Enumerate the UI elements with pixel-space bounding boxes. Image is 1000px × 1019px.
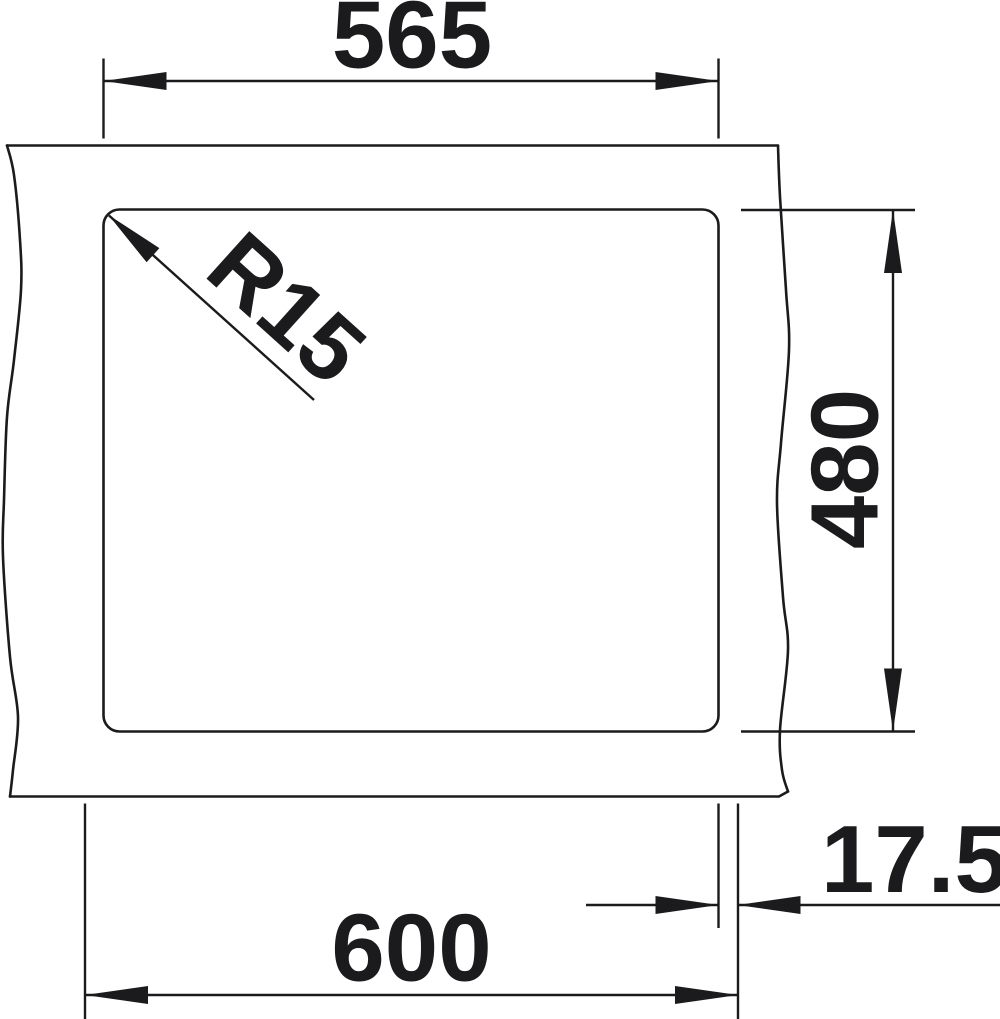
svg-text:17.5: 17.5 [821,806,1000,913]
svg-text:565: 565 [332,0,492,89]
svg-text:480: 480 [792,389,899,549]
svg-text:600: 600 [331,895,491,1002]
